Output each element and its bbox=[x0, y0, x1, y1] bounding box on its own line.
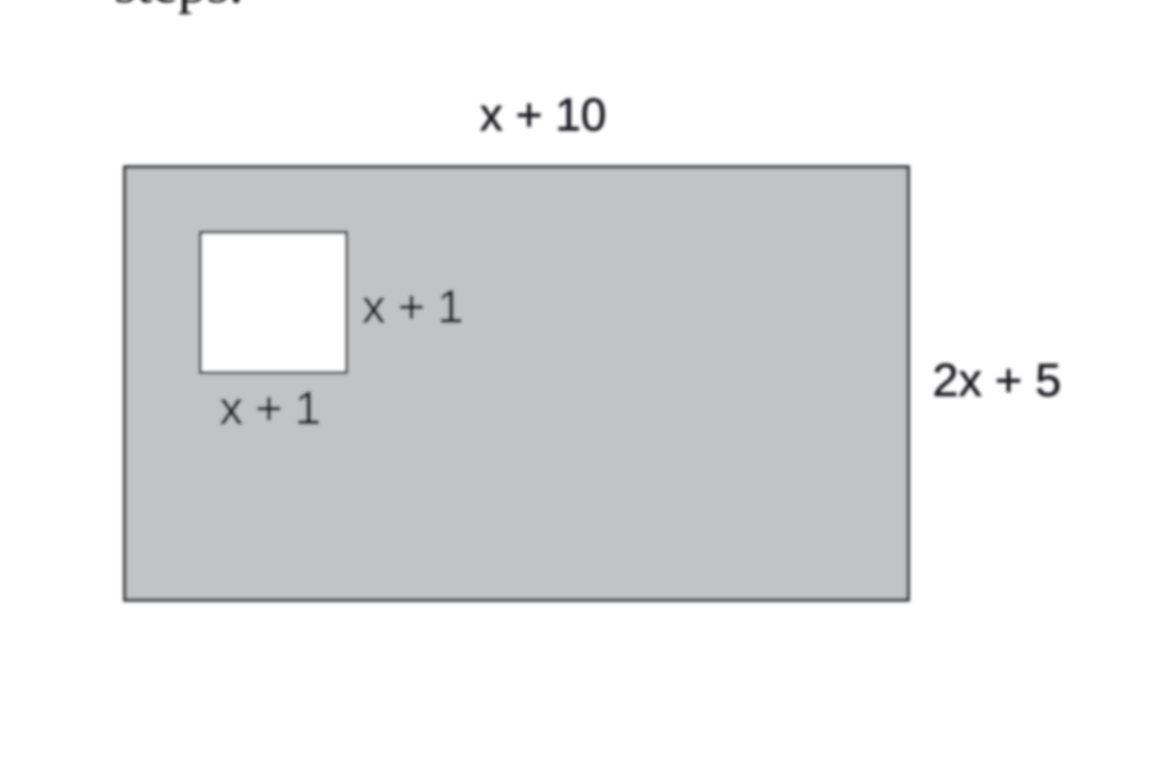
svg-text:x + 1: x + 1 bbox=[362, 281, 463, 333]
svg-text:steps.: steps. bbox=[114, 0, 243, 15]
svg-text:x + 1: x + 1 bbox=[220, 382, 321, 434]
svg-text:x + 10: x + 10 bbox=[480, 89, 607, 141]
svg-text:2x + 5: 2x + 5 bbox=[933, 354, 1062, 406]
